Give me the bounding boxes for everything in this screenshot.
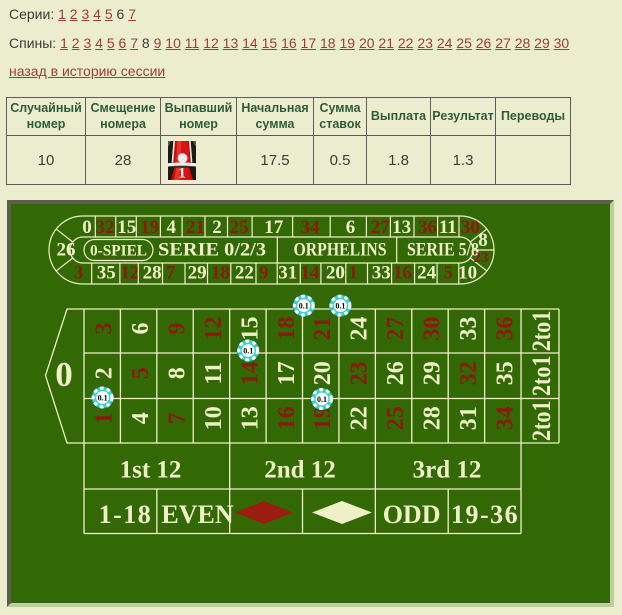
svg-text:30: 30 <box>419 317 445 341</box>
svg-text:15: 15 <box>117 217 136 238</box>
svg-text:29: 29 <box>419 361 445 385</box>
svg-text:27: 27 <box>371 217 391 238</box>
svg-text:1st 12: 1st 12 <box>120 457 182 484</box>
svg-text:34: 34 <box>301 217 321 238</box>
svg-text:0.1: 0.1 <box>243 346 253 355</box>
svg-text:35: 35 <box>492 361 518 385</box>
svg-text:23: 23 <box>347 361 373 385</box>
svg-text:2: 2 <box>92 367 118 379</box>
svg-text:5: 5 <box>444 263 454 284</box>
svg-text:36: 36 <box>418 217 437 238</box>
svg-text:ODD: ODD <box>383 500 441 529</box>
svg-text:15: 15 <box>237 317 263 341</box>
svg-text:21: 21 <box>186 217 205 238</box>
svg-text:16: 16 <box>393 263 412 284</box>
svg-text:SERIE 0/2/3: SERIE 0/2/3 <box>158 240 266 261</box>
svg-text:3: 3 <box>74 263 84 284</box>
svg-text:2: 2 <box>212 217 222 238</box>
svg-text:12: 12 <box>120 263 139 284</box>
svg-text:11: 11 <box>201 362 227 385</box>
svg-text:26: 26 <box>57 240 76 261</box>
svg-text:34: 34 <box>492 406 518 430</box>
svg-text:27: 27 <box>383 317 409 341</box>
svg-text:28: 28 <box>419 406 445 430</box>
svg-text:4: 4 <box>128 412 154 424</box>
svg-text:4: 4 <box>167 217 177 238</box>
svg-text:0.1: 0.1 <box>317 395 327 404</box>
svg-text:1: 1 <box>92 412 118 424</box>
svg-text:9: 9 <box>259 263 269 284</box>
svg-text:13: 13 <box>237 406 263 430</box>
svg-text:5: 5 <box>128 367 154 379</box>
svg-text:SERIE 5/8: SERIE 5/8 <box>407 240 479 261</box>
svg-text:23: 23 <box>474 250 489 266</box>
svg-text:25: 25 <box>230 217 249 238</box>
svg-text:17: 17 <box>274 361 300 385</box>
svg-text:31: 31 <box>278 263 297 284</box>
svg-text:24: 24 <box>347 317 373 341</box>
svg-text:12: 12 <box>201 317 227 341</box>
svg-text:14: 14 <box>237 361 263 385</box>
svg-text:28: 28 <box>143 263 162 284</box>
svg-text:20: 20 <box>326 263 345 284</box>
svg-text:1-18: 1-18 <box>99 500 153 529</box>
svg-text:0.1: 0.1 <box>335 301 345 310</box>
svg-text:32: 32 <box>96 217 115 238</box>
svg-text:0: 0 <box>82 217 92 238</box>
svg-text:16: 16 <box>274 406 300 430</box>
svg-text:18: 18 <box>211 263 230 284</box>
svg-text:2to1: 2to1 <box>528 401 556 441</box>
svg-text:EVEN: EVEN <box>161 500 233 529</box>
svg-text:21: 21 <box>310 317 336 341</box>
svg-text:24: 24 <box>417 263 437 284</box>
svg-text:0.1: 0.1 <box>299 301 309 310</box>
svg-text:2to1: 2to1 <box>528 356 556 396</box>
svg-text:6: 6 <box>128 323 154 335</box>
svg-text:13: 13 <box>392 217 411 238</box>
svg-text:25: 25 <box>383 406 409 430</box>
svg-text:20: 20 <box>310 361 336 385</box>
svg-text:7: 7 <box>166 263 176 284</box>
svg-text:18: 18 <box>274 317 300 341</box>
svg-text:10: 10 <box>201 406 227 430</box>
svg-text:2nd 12: 2nd 12 <box>264 457 336 484</box>
svg-text:35: 35 <box>97 263 116 284</box>
svg-text:19-36: 19-36 <box>451 500 519 529</box>
svg-text:32: 32 <box>456 361 482 385</box>
svg-text:0.1: 0.1 <box>98 393 108 402</box>
svg-text:14: 14 <box>301 263 321 284</box>
svg-text:3rd 12: 3rd 12 <box>413 457 482 484</box>
svg-text:19: 19 <box>140 217 159 238</box>
svg-text:8: 8 <box>165 367 191 379</box>
svg-text:33: 33 <box>372 263 391 284</box>
svg-text:36: 36 <box>492 317 518 341</box>
svg-text:30: 30 <box>461 217 480 238</box>
svg-text:7: 7 <box>165 412 191 424</box>
svg-text:ORPHELINS: ORPHELINS <box>294 240 387 261</box>
svg-text:0: 0 <box>55 355 73 394</box>
svg-text:1: 1 <box>348 263 358 284</box>
svg-text:22: 22 <box>235 263 254 284</box>
svg-text:8: 8 <box>478 230 488 251</box>
svg-text:33: 33 <box>456 317 482 341</box>
svg-text:1: 1 <box>178 166 186 181</box>
svg-text:31: 31 <box>456 406 482 430</box>
svg-text:17: 17 <box>264 217 284 238</box>
svg-text:3: 3 <box>92 323 118 335</box>
svg-text:26: 26 <box>383 361 409 385</box>
svg-text:0-SPIEL: 0-SPIEL <box>90 243 147 260</box>
svg-text:22: 22 <box>347 406 373 430</box>
svg-text:9: 9 <box>165 323 191 335</box>
svg-text:2to1: 2to1 <box>528 311 556 351</box>
svg-text:29: 29 <box>188 263 207 284</box>
svg-text:11: 11 <box>439 217 457 238</box>
svg-text:6: 6 <box>346 217 356 238</box>
